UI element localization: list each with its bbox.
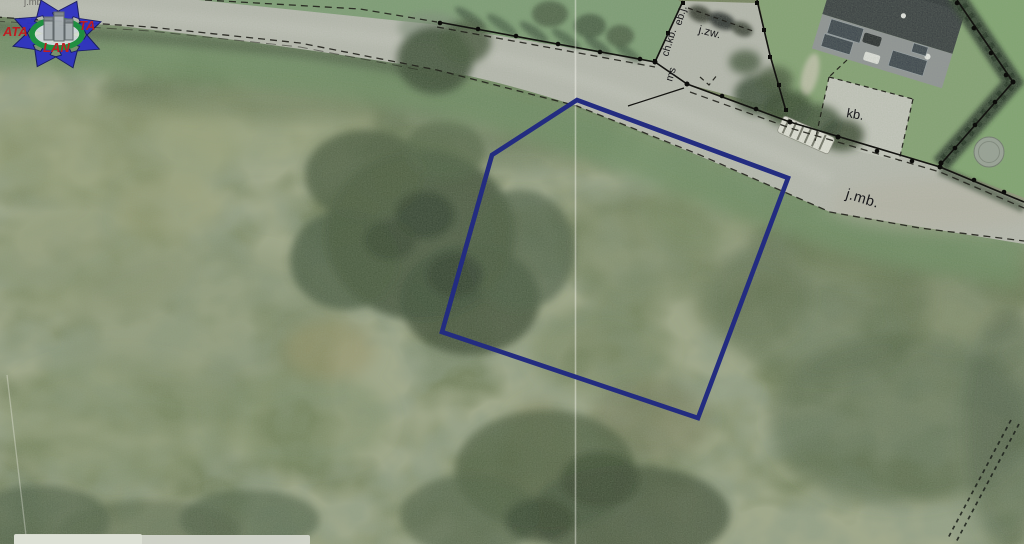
aerial-map-screenshot: j.mb. j.mb. kb. j.zw. ch.kb. eb.j. ms [0,0,1024,544]
logo-text-right: TA [79,18,95,33]
bottom-partial-bar [14,534,310,544]
aerial-map-canvas: j.mb. j.mb. kb. j.zw. ch.kb. eb.j. ms [0,0,1024,544]
logo-text-left: ATA [2,24,28,39]
gravel-label: kb. [845,105,865,123]
photo-grain [0,0,1024,544]
logo-text-bottom: LAN [43,40,70,55]
